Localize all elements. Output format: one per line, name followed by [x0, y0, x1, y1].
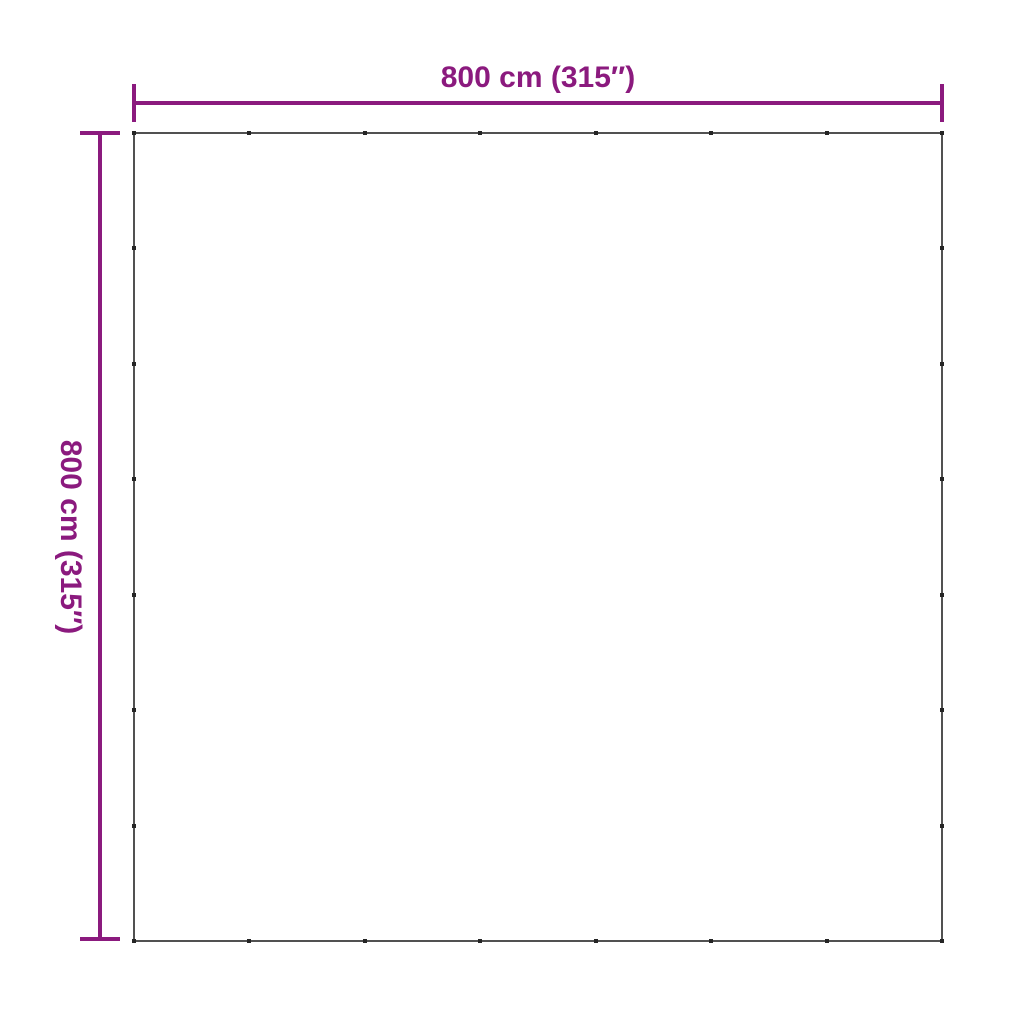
- eyelet-dot: [594, 131, 598, 135]
- eyelet-dot: [940, 131, 944, 135]
- eyelet-dot: [478, 939, 482, 943]
- eyelet-dot: [132, 939, 136, 943]
- eyelet-dot: [709, 131, 713, 135]
- eyelet-dot: [709, 939, 713, 943]
- eyelet-dot: [132, 708, 136, 712]
- eyelet-dot: [132, 246, 136, 250]
- eyelet-dot: [247, 939, 251, 943]
- eyelet-dot: [940, 824, 944, 828]
- eyelet-dot: [363, 131, 367, 135]
- dimension-diagram: 800 cm (315″) 800 cm (315″): [0, 0, 1024, 1024]
- width-dimension-line: [133, 101, 943, 105]
- eyelet-dot: [132, 593, 136, 597]
- tarpaulin-outline: [133, 132, 943, 942]
- width-dimension-label: 800 cm (315″): [133, 59, 943, 97]
- eyelet-dot: [940, 362, 944, 366]
- eyelet-dot: [825, 939, 829, 943]
- eyelet-dot: [363, 939, 367, 943]
- eyelet-dot: [478, 131, 482, 135]
- eyelet-dot: [940, 708, 944, 712]
- height-dimension-line: [98, 133, 102, 941]
- eyelet-dot: [132, 824, 136, 828]
- eyelet-dot: [940, 246, 944, 250]
- eyelet-dot: [247, 131, 251, 135]
- eyelet-dot: [132, 362, 136, 366]
- height-dimension-top-cap: [80, 131, 120, 135]
- eyelet-dot: [940, 477, 944, 481]
- width-dimension-right-cap: [940, 84, 944, 122]
- height-dimension-label: 800 cm (315″): [50, 427, 90, 647]
- height-dimension-bottom-cap: [80, 937, 120, 941]
- eyelet-dot: [940, 939, 944, 943]
- eyelet-dot: [594, 939, 598, 943]
- eyelet-dot: [132, 131, 136, 135]
- width-dimension-left-cap: [132, 84, 136, 122]
- eyelet-dot: [825, 131, 829, 135]
- eyelet-dot: [132, 477, 136, 481]
- eyelet-dot: [940, 593, 944, 597]
